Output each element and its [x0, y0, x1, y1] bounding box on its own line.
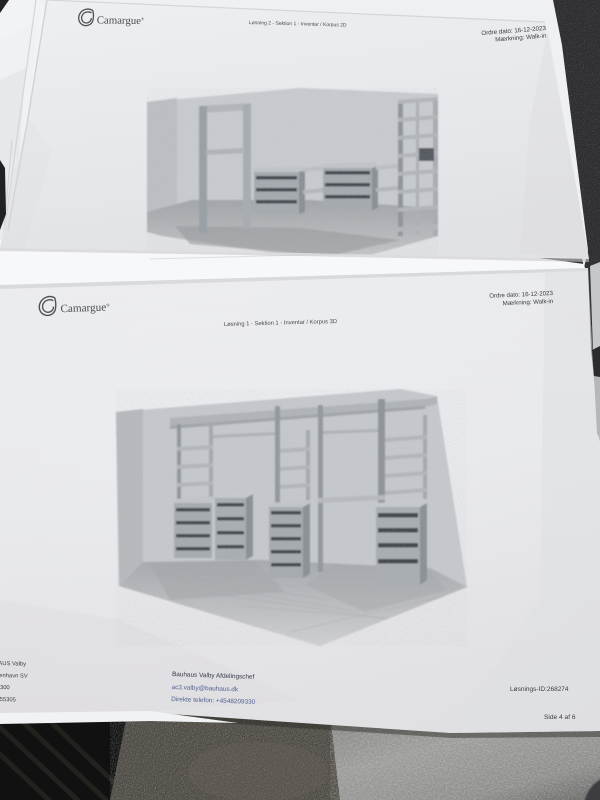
- svg-text:Løsnings-ID:268274: Løsnings-ID:268274: [510, 686, 569, 693]
- svg-text:benhavn SV: benhavn SV: [0, 673, 28, 680]
- svg-text:9300: 9300: [0, 685, 10, 691]
- svg-text:Side 4 af 6: Side 4 af 6: [544, 714, 576, 721]
- svg-text:Camargue®: Camargue®: [60, 301, 110, 315]
- svg-text:AUS Valby: AUS Valby: [0, 661, 26, 668]
- svg-text:555305: 555305: [0, 697, 16, 704]
- svg-text:Camargue®: Camargue®: [97, 14, 144, 27]
